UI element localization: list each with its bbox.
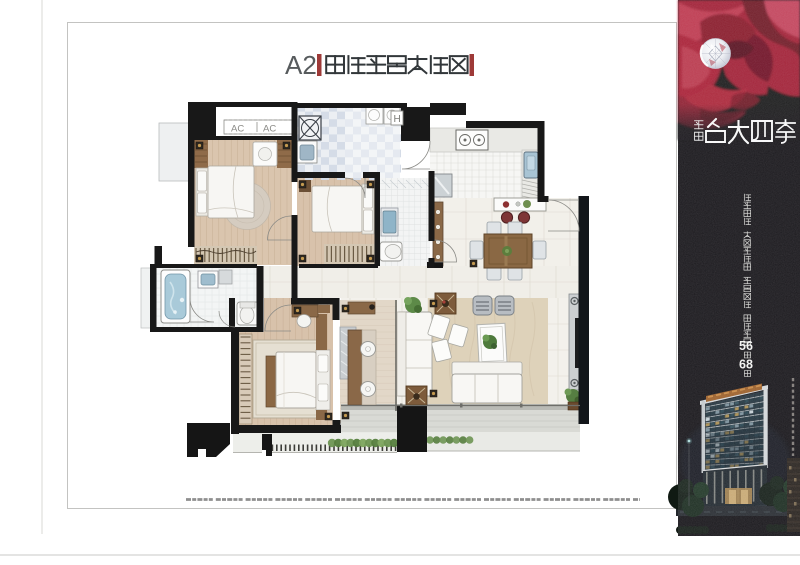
svg-text:A2: A2 (285, 50, 317, 80)
svg-text:AC: AC (231, 124, 244, 135)
svg-text:H: H (394, 114, 401, 125)
svg-text:AC: AC (263, 124, 276, 135)
